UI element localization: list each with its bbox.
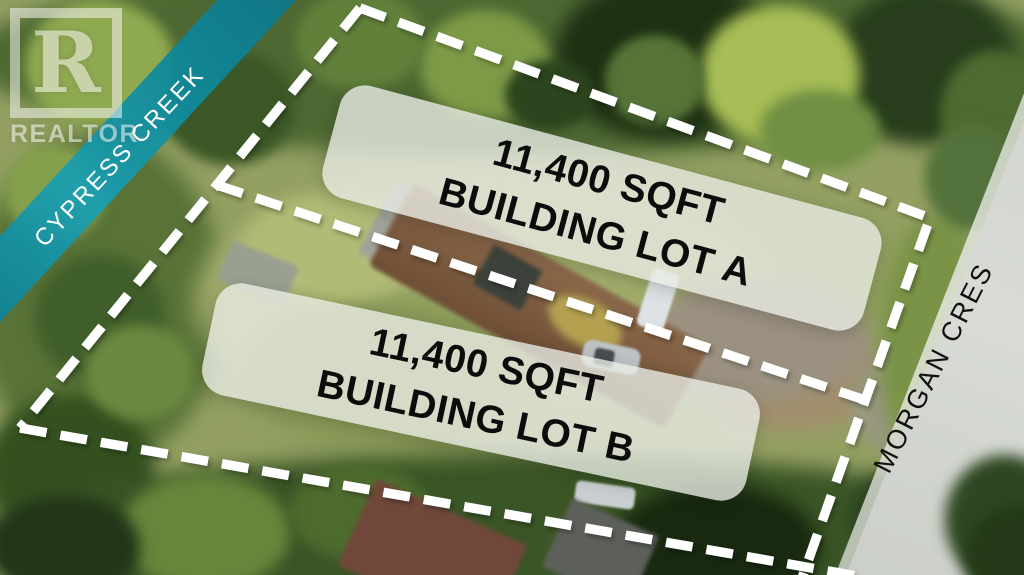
realtor-logo: R REALTOR [10, 8, 139, 149]
realtor-logo-frame: R [10, 8, 122, 118]
realtor-logo-letter: R [31, 21, 101, 105]
aerial-photo: 11,400 SQFT BUILDING LOT A 11,400 SQFT B… [0, 0, 1024, 575]
realtor-logo-text: REALTOR [10, 120, 139, 149]
